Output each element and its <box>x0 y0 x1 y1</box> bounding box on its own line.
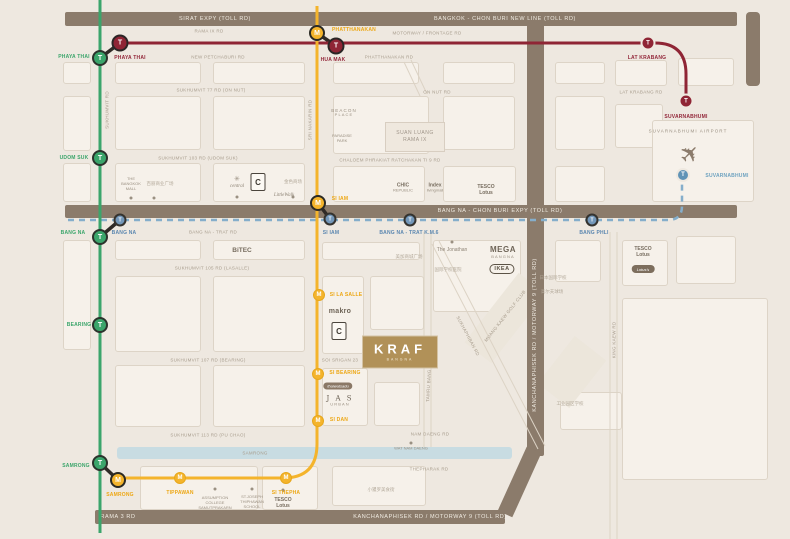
city-block <box>213 365 305 427</box>
station-label-bang-na-bts: BANG NA <box>61 230 86 236</box>
ikea-logo: IKEA <box>489 264 514 274</box>
street-label: SOI SRIGAN 23 <box>322 358 358 363</box>
station-si-bearing: M <box>312 368 324 380</box>
toll-label-bangna-chonburi: BANG NA - CHON BURI EXPY (TOLL RD) <box>438 208 563 214</box>
the-bangkok-mall: THEBANGKOKMALL <box>121 177 141 191</box>
station-si-iam-m: M <box>310 195 326 211</box>
station-label-bangna-trat-km6: BANG NA - TRAT K.M.6 <box>379 230 438 236</box>
street-label: THEPHARAK RD <box>410 467 449 472</box>
city-block <box>555 62 605 84</box>
cjk-label: 国际学校医院 <box>435 267 462 273</box>
station-glyph: T <box>681 172 685 178</box>
station-glyph: M <box>316 371 321 377</box>
assumption-college: ASSUMPTIONCOLLEGESAMUTPRAKARN <box>198 496 231 510</box>
toll-road-middle <box>65 205 737 218</box>
station-label-bang-na-lrt: BANG NA <box>112 230 137 236</box>
the-jonathan: The Jonathan <box>437 247 468 253</box>
station-label-suvarnabhumi-city: SUVARNABHUMI <box>705 173 748 179</box>
station-si-iam-lrt: T <box>324 213 337 226</box>
kraf-logo-name: KRAF <box>374 343 426 356</box>
cjk-label: 金色商场 <box>284 179 302 185</box>
city-block <box>678 58 734 86</box>
tesco-lotus-onnut: TESCOLotus <box>477 184 494 196</box>
central-text: ✳ <box>230 176 244 184</box>
station-glyph: M <box>178 475 183 481</box>
cjk-label: 日本国际学校 <box>540 275 567 281</box>
station-glyph: M <box>314 30 320 37</box>
station-label-phaya-thai-arl: PHAYA THAI <box>114 55 145 61</box>
city-block <box>622 298 768 480</box>
toll-label-bangkok-chonburi: BANGKOK - CHON BURI NEW LINE (TOLL RD) <box>434 16 576 22</box>
city-block <box>213 240 305 260</box>
street-label: SRI NAKARIN RD <box>308 100 313 141</box>
samrong-canal <box>117 447 512 459</box>
paradise-park: PARADISEPARK <box>332 134 352 144</box>
station-glyph: T <box>684 98 688 104</box>
street-label: PHATTHANAKAN RD <box>365 55 413 60</box>
index-livingmall: Indexlivingmall <box>427 183 443 194</box>
city-block <box>615 60 667 86</box>
poi-dot <box>251 488 254 491</box>
station-label-tippawan: TIPPAWAN <box>166 490 193 496</box>
station-si-dan: M <box>312 415 324 427</box>
station-label-si-la-salle: SI LA SALLE <box>330 292 363 298</box>
street-label: ON NUT RD <box>423 90 451 95</box>
cjk-label: 美加商城广场 <box>396 254 423 260</box>
station-glyph: T <box>98 460 102 467</box>
street-label: MOTORWAY / FRONTAGE RD <box>392 31 461 36</box>
city-block <box>374 382 420 426</box>
little-walk-text: LittleWalk <box>274 193 294 199</box>
station-glyph: T <box>98 155 102 162</box>
city-block <box>115 62 201 84</box>
city-block <box>63 163 91 202</box>
little-walk: LittleWalk <box>274 193 294 199</box>
station-label-hua-mak-arl: HUA MAK <box>321 57 346 63</box>
makro: makro <box>329 308 352 316</box>
station-label-si-thepha: SI THEPHA <box>272 490 300 496</box>
street-label: CHALOEM PHRAKIAT RATCHAKAN TI 9 RD <box>339 158 440 163</box>
station-phaya-thai-arl: T <box>112 35 129 52</box>
station-samrong-bts: T <box>92 455 108 471</box>
station-label-si-iam-lrt: SI IAM <box>323 230 339 236</box>
toll-label-rama3: RAMA 3 RD <box>100 514 135 520</box>
beacon-place-text: PLACE <box>331 113 357 118</box>
cjk-label: 高尔夫球场 <box>541 289 564 295</box>
station-bearing: T <box>92 317 108 333</box>
chic-republic-text: REPUBLIC <box>393 189 413 194</box>
station-glyph: M <box>317 292 322 298</box>
suvarnabhumi-airport-label-text: SUVARNABHUMI AIRPORT <box>649 128 728 133</box>
station-bangna-trat-km6: T <box>404 214 417 227</box>
street-label: SUKHUMVIT 105 RD (LASALLE) <box>175 266 250 271</box>
station-suvarnabhumi-city: T <box>676 168 690 182</box>
street-label: NAM DAENG RD <box>411 432 450 437</box>
station-samrong-m: M <box>110 472 126 488</box>
station-hua-mak-arl: T <box>328 38 345 55</box>
station-label-udom-suk: UDOM SUK <box>60 155 89 161</box>
street-label: LAT KRABANG RD <box>619 90 662 95</box>
city-block <box>115 96 201 150</box>
poi-dot <box>153 197 156 200</box>
tesco-lotus-south: TESCOLotus <box>274 497 291 509</box>
suan-luang-rama9-park: SUAN LUANG RAMA IX <box>385 122 445 152</box>
index-livingmall-text: livingmall <box>427 189 443 194</box>
station-glyph: T <box>98 55 102 62</box>
kraf-bangna-location-map: SIRAT EXPY (TOLL RD) BANGKOK - CHON BURI… <box>0 0 790 539</box>
toll-label-sirat-expy: SIRAT EXPY (TOLL RD) <box>179 16 251 22</box>
station-label-phaya-thai-bts: PHAYA THAI <box>58 54 89 60</box>
jas-urban: J A SURBAN <box>326 394 353 407</box>
city-block <box>213 276 305 352</box>
chic-republic: CHICREPUBLIC <box>393 183 413 194</box>
city-block <box>63 62 91 84</box>
city-block <box>443 96 515 150</box>
station-label-suvarnabhumi-arl: SUVARNABHUMI <box>664 114 707 120</box>
the-jonathan-text: The Jonathan <box>437 247 468 253</box>
station-label-samrong-bts: SAMRONG <box>62 463 90 469</box>
station-label-bearing: BEARING <box>67 322 91 328</box>
street-label: BANG NA - TRAT RD <box>189 230 237 235</box>
street-label: SUKHUMVIT 77 RD (ON NUT) <box>176 88 245 93</box>
city-block <box>63 240 91 350</box>
station-si-thepha: M <box>280 472 292 484</box>
station-label-si-bearing: SI BEARING <box>329 370 360 376</box>
toll-label-kanchanaphisek-bottom: KANCHANAPHISEK RD / MOTORWAY 9 (TOLL RD) <box>353 514 507 520</box>
jas-urban-text: URBAN <box>326 403 353 408</box>
station-glyph: T <box>590 217 593 223</box>
mega-bangna-text: BANGNA <box>490 254 516 259</box>
tesco-lotus-east-text: Lotus <box>634 252 651 258</box>
kraf-logo: KRAF BANGNA <box>362 336 438 369</box>
central-text: central <box>230 184 244 190</box>
cjk-label: 百丽商业广场 <box>147 181 174 187</box>
station-glyph: M <box>316 418 321 424</box>
city-block <box>115 365 201 427</box>
street-label: RAMA IX RD <box>194 29 223 34</box>
cjk-label: 工业园区学校 <box>557 401 584 407</box>
poi-dot <box>410 442 413 445</box>
toll-road-bottom-diagonal <box>505 450 534 514</box>
st-joseph-school-text: SCHOOL <box>240 504 264 509</box>
city-block <box>676 236 736 284</box>
station-bang-na-lrt: T <box>114 214 127 227</box>
station-label-si-dan: SI DAN <box>330 417 348 423</box>
station-glyph: T <box>328 216 331 222</box>
station-glyph: M <box>315 200 321 207</box>
makro-text: makro <box>329 308 352 316</box>
street-label: NEW PETCHABURI RD <box>191 55 245 60</box>
thaiwatsadu-logo: thaiwatsadu <box>323 383 352 390</box>
assumption-college-text: SAMUTPRAKARN <box>198 505 231 510</box>
poi-dot <box>236 196 239 199</box>
station-phatthanakan: M <box>309 25 325 41</box>
city-block <box>115 240 201 260</box>
tesco-lotus-east: TESCOLotus <box>634 246 651 258</box>
city-block <box>333 62 419 84</box>
station-label-phatthanakan: PHATTHANAKAN <box>332 27 376 33</box>
toll-road-top-stub <box>746 12 760 86</box>
beacon-place: BEACONPLACE <box>331 108 357 118</box>
station-glyph: T <box>334 43 338 50</box>
kraf-logo-sub: BANGNA <box>387 358 414 362</box>
city-block <box>213 96 305 150</box>
street-label: KING KAEW RD <box>612 322 617 359</box>
station-glyph: T <box>646 40 650 46</box>
station-glyph: M <box>115 477 121 484</box>
street-label: SUKHUMVIT RD <box>105 91 110 129</box>
big-c-srinakarin-logo: C <box>332 322 347 340</box>
cjk-label: 小暹罗美食街 <box>368 487 395 493</box>
st-joseph-school: ST.JOSEPHTHIPHAWANSCHOOL <box>240 495 264 509</box>
station-bang-na-bts: T <box>92 229 108 245</box>
city-block <box>370 276 424 330</box>
station-glyph: T <box>98 322 102 329</box>
city-block <box>555 166 605 202</box>
street-label: SUKHUMVIT 107 RD (BEARING) <box>170 358 245 363</box>
toll-label-kanchanaphisek-vert: KANCHANAPHISEK RD / MOTORWAY 9 (TOLL RD) <box>532 258 538 412</box>
poi-dot <box>451 241 454 244</box>
paradise-park-text: PARK <box>332 139 352 144</box>
station-glyph: T <box>98 234 102 241</box>
tesco-lotus-south-text: Lotus <box>274 503 291 509</box>
station-suvarnabhumi-arl: T <box>679 94 694 109</box>
mega-bangna: MEGABANGNA <box>490 245 516 259</box>
wat-nam-daeng: WAT NAM DAENG <box>394 447 428 452</box>
station-label-bang-phli: BANG PHLI <box>579 230 608 236</box>
station-udom-suk: T <box>92 150 108 166</box>
bitec-text: BiTEC <box>232 247 252 255</box>
station-glyph: T <box>118 40 122 47</box>
central: ✳central <box>230 176 244 190</box>
city-block <box>115 276 201 352</box>
city-block <box>63 96 91 151</box>
poi-dot <box>130 197 133 200</box>
street-label: SUKHUMVIT 113 RD (PU CHAO) <box>170 433 245 438</box>
suan-luang-line1: SUAN LUANG <box>396 130 434 138</box>
street-label: SAMRONG <box>242 451 267 456</box>
suvarnabhumi-airport-label: SUVARNABHUMI AIRPORT <box>649 128 728 133</box>
station-label-samrong-m: SAMRONG <box>106 492 134 498</box>
station-glyph: T <box>118 217 121 223</box>
the-bangkok-mall-text: MALL <box>121 186 141 191</box>
station-label-lat-krabang-arl: LAT KRABANG <box>628 55 667 61</box>
poi-dot <box>214 488 217 491</box>
station-phaya-thai-bts: T <box>92 50 108 66</box>
station-bang-phli: T <box>586 214 599 227</box>
station-label-si-iam-m: SI IAM <box>332 196 348 202</box>
station-lat-krabang-arl: T <box>641 36 656 51</box>
bitec: BiTEC <box>232 247 252 255</box>
suan-luang-line2: RAMA IX <box>403 137 427 145</box>
city-block <box>213 62 305 84</box>
station-glyph: T <box>408 217 411 223</box>
city-block <box>332 466 426 506</box>
station-tippawan: M <box>174 472 186 484</box>
street-label: SUKHUMVIT 103 RD (UDOM SUK) <box>158 156 238 161</box>
city-block <box>555 96 605 150</box>
station-si-la-salle: M <box>313 289 325 301</box>
big-c-udomsuk-logo: C <box>251 173 266 191</box>
station-glyph: M <box>284 475 289 481</box>
lotus-oval-logo: Lotus's <box>632 265 655 273</box>
toll-road-top <box>65 12 737 26</box>
city-block <box>443 62 515 84</box>
wat-nam-daeng-text: WAT NAM DAENG <box>394 447 428 452</box>
tesco-lotus-onnut-text: Lotus <box>477 190 494 196</box>
